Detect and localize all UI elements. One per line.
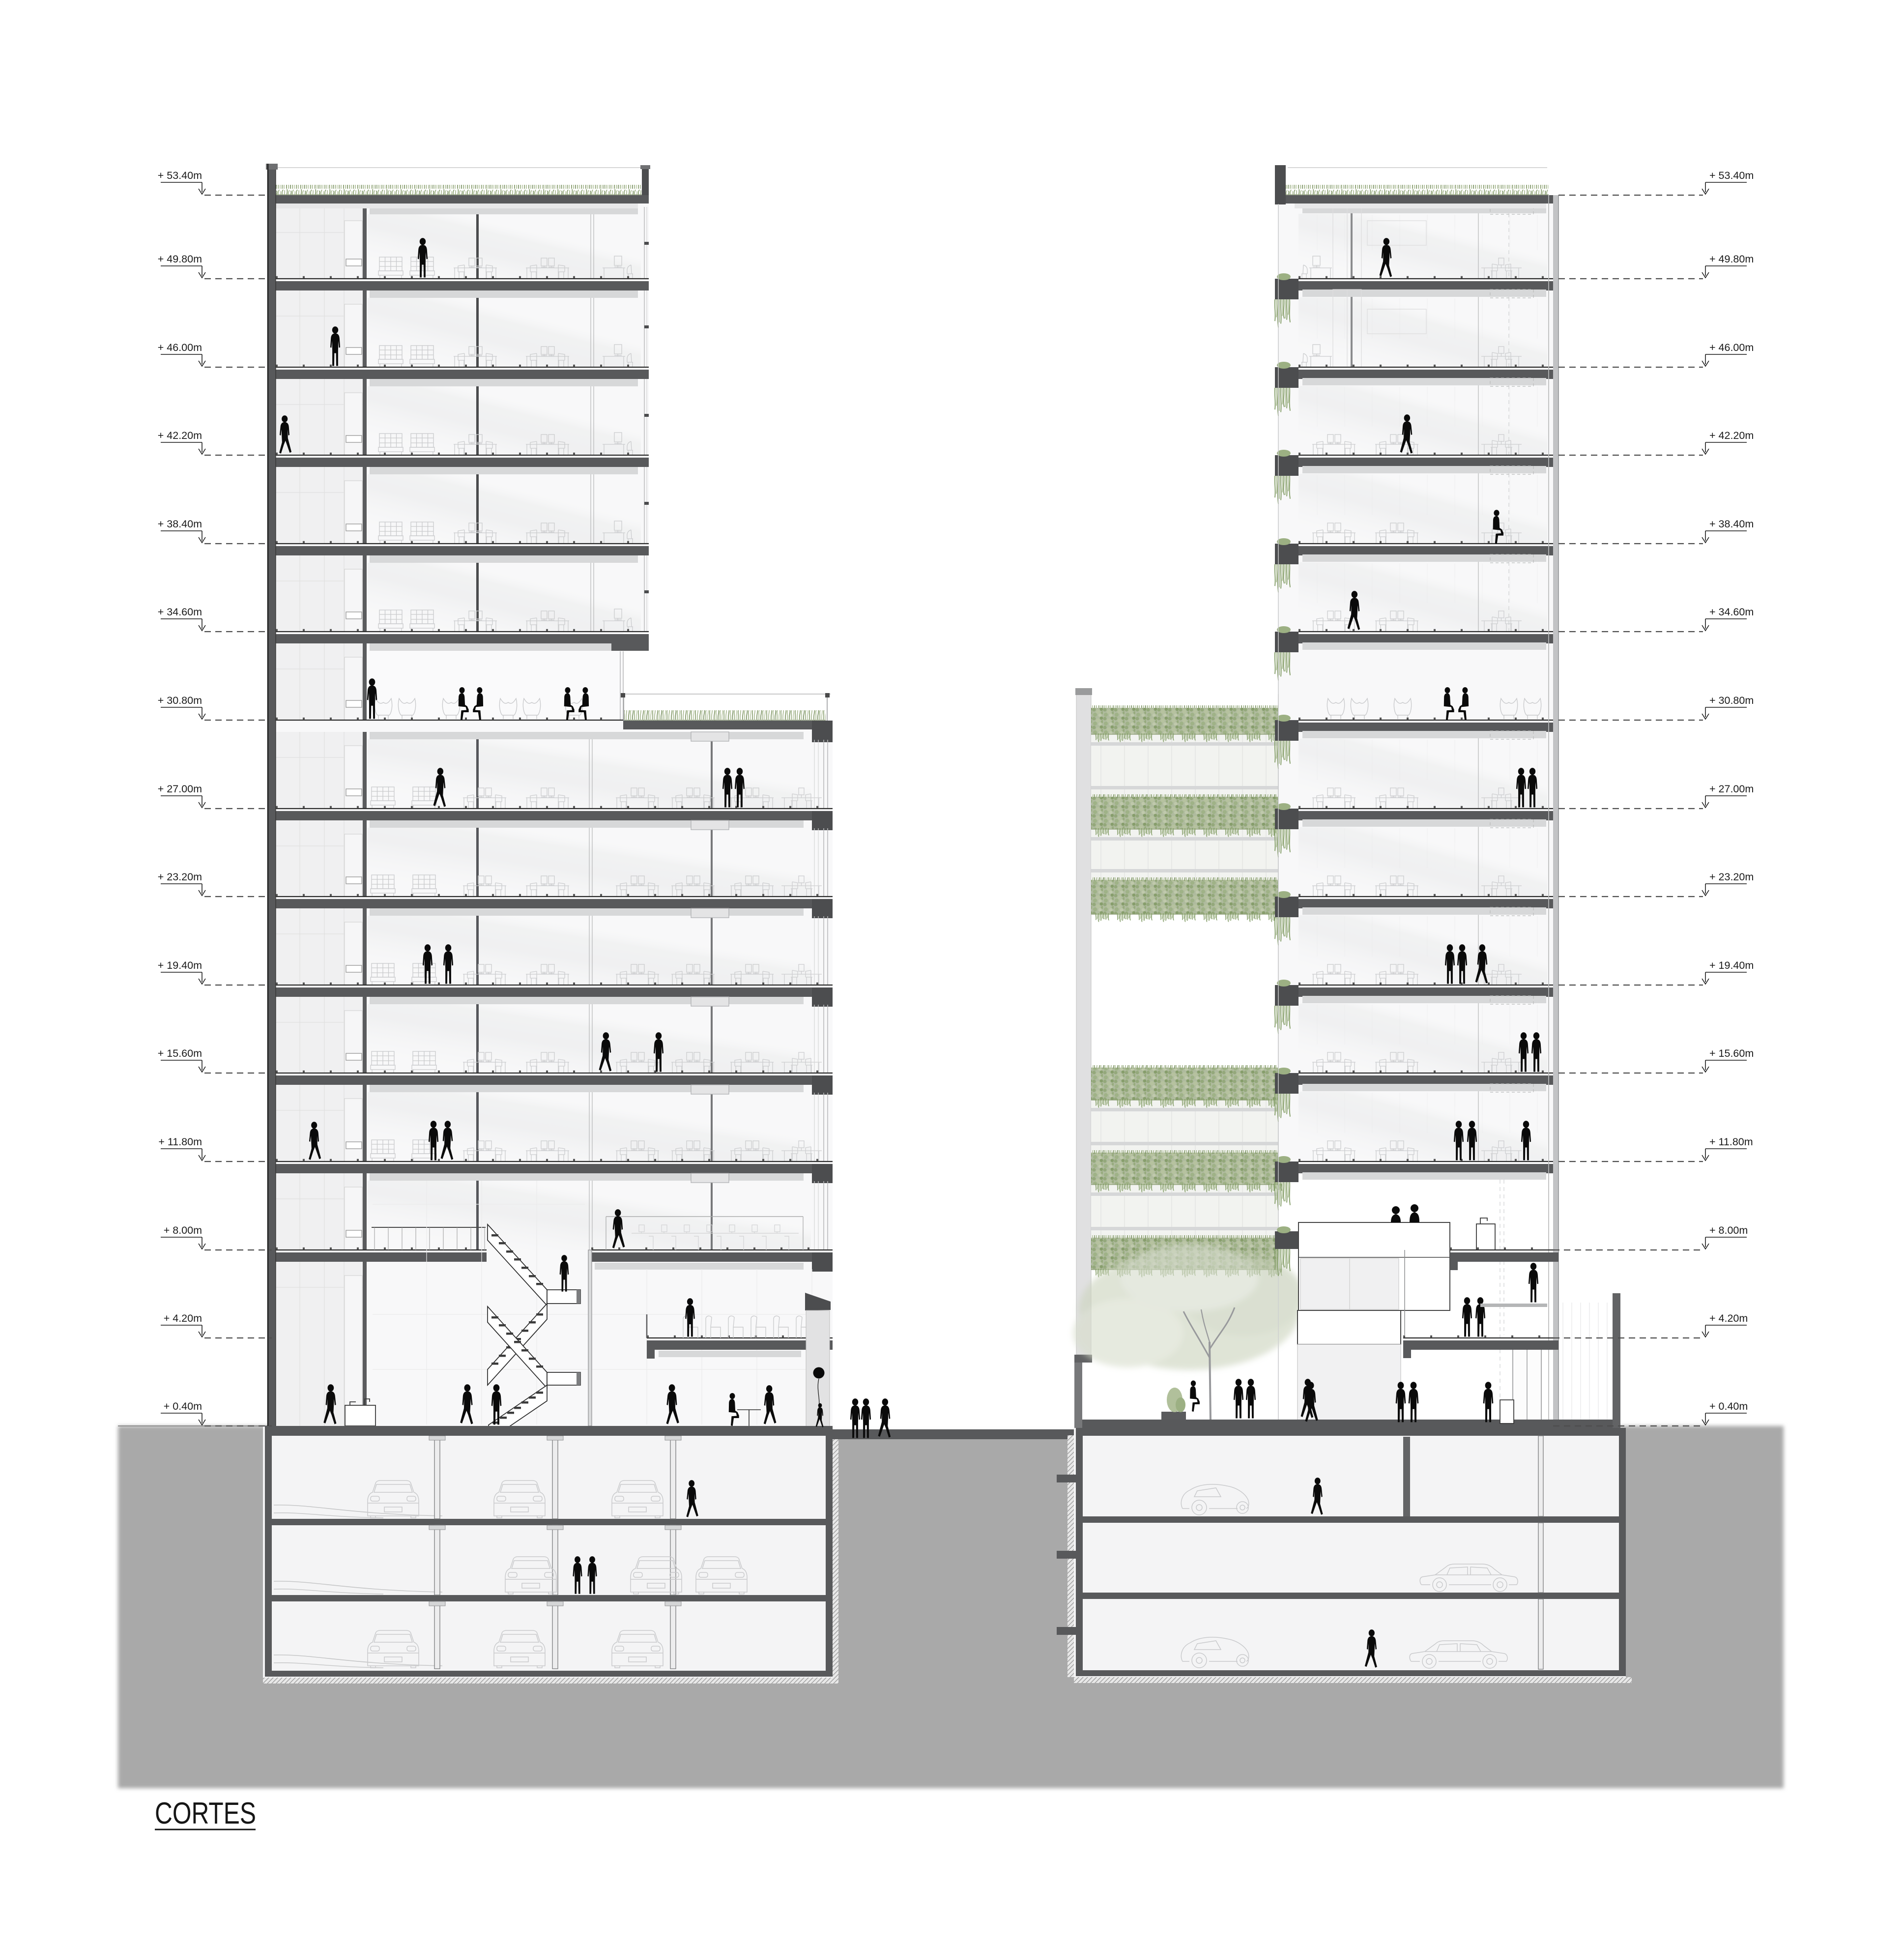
svg-text:+ 30.80m: + 30.80m <box>158 695 202 706</box>
svg-text:+ 11.80m: + 11.80m <box>1709 1136 1753 1148</box>
svg-text:+ 11.80m: + 11.80m <box>158 1136 202 1148</box>
svg-text:+ 15.60m: + 15.60m <box>158 1047 202 1059</box>
svg-text:+ 49.80m: + 49.80m <box>158 253 202 265</box>
svg-text:+ 19.40m: + 19.40m <box>158 959 202 971</box>
svg-text:+ 53.40m: + 53.40m <box>158 170 202 181</box>
svg-text:+ 34.60m: + 34.60m <box>158 606 202 618</box>
svg-text:+ 42.20m: + 42.20m <box>1709 430 1754 441</box>
svg-text:+ 42.20m: + 42.20m <box>158 430 202 441</box>
svg-text:+ 8.00m: + 8.00m <box>164 1224 202 1236</box>
svg-text:+ 27.00m: + 27.00m <box>158 783 202 795</box>
svg-text:+ 46.00m: + 46.00m <box>1709 342 1754 353</box>
svg-text:+ 27.00m: + 27.00m <box>1709 783 1754 795</box>
svg-text:+ 4.20m: + 4.20m <box>164 1312 202 1324</box>
svg-text:+ 34.60m: + 34.60m <box>1709 606 1754 618</box>
svg-text:+ 4.20m: + 4.20m <box>1709 1312 1748 1324</box>
svg-text:+ 49.80m: + 49.80m <box>1709 253 1754 265</box>
svg-text:+ 38.40m: + 38.40m <box>1709 518 1754 530</box>
svg-text:+ 0.40m: + 0.40m <box>1709 1400 1748 1412</box>
svg-text:+ 30.80m: + 30.80m <box>1709 695 1754 706</box>
svg-text:+ 8.00m: + 8.00m <box>1709 1224 1748 1236</box>
svg-text:+ 0.40m: + 0.40m <box>164 1400 202 1412</box>
svg-text:+ 46.00m: + 46.00m <box>158 342 202 353</box>
svg-text:+ 23.20m: + 23.20m <box>1709 871 1754 883</box>
svg-text:+ 38.40m: + 38.40m <box>158 518 202 530</box>
svg-text:+ 19.40m: + 19.40m <box>1709 959 1754 971</box>
svg-text:+ 53.40m: + 53.40m <box>1709 170 1754 181</box>
svg-text:+ 23.20m: + 23.20m <box>158 871 202 883</box>
svg-text:+ 15.60m: + 15.60m <box>1709 1047 1754 1059</box>
svg-text:CORTES: CORTES <box>155 1797 256 1830</box>
